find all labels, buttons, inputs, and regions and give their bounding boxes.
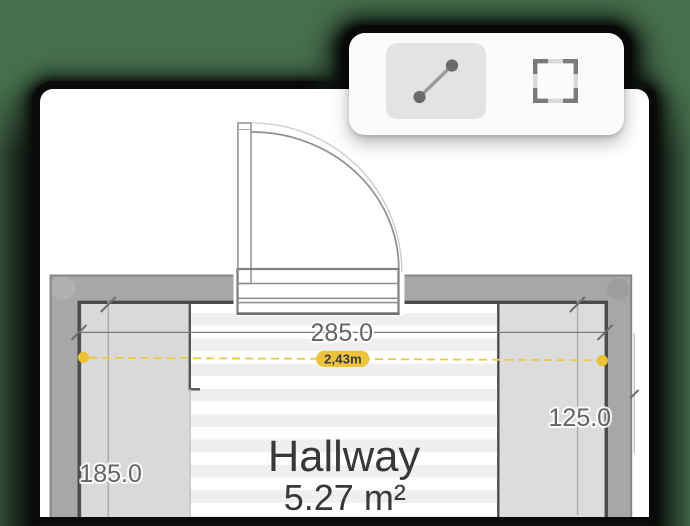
- svg-text:125.0: 125.0: [549, 404, 612, 432]
- svg-text:5.27 m²: 5.27 m²: [284, 477, 406, 517]
- svg-text:185.0: 185.0: [79, 460, 142, 488]
- svg-text:285.0: 285.0: [311, 319, 374, 347]
- svg-text:2,43m: 2,43m: [324, 352, 362, 367]
- svg-text:Hallway: Hallway: [268, 433, 421, 481]
